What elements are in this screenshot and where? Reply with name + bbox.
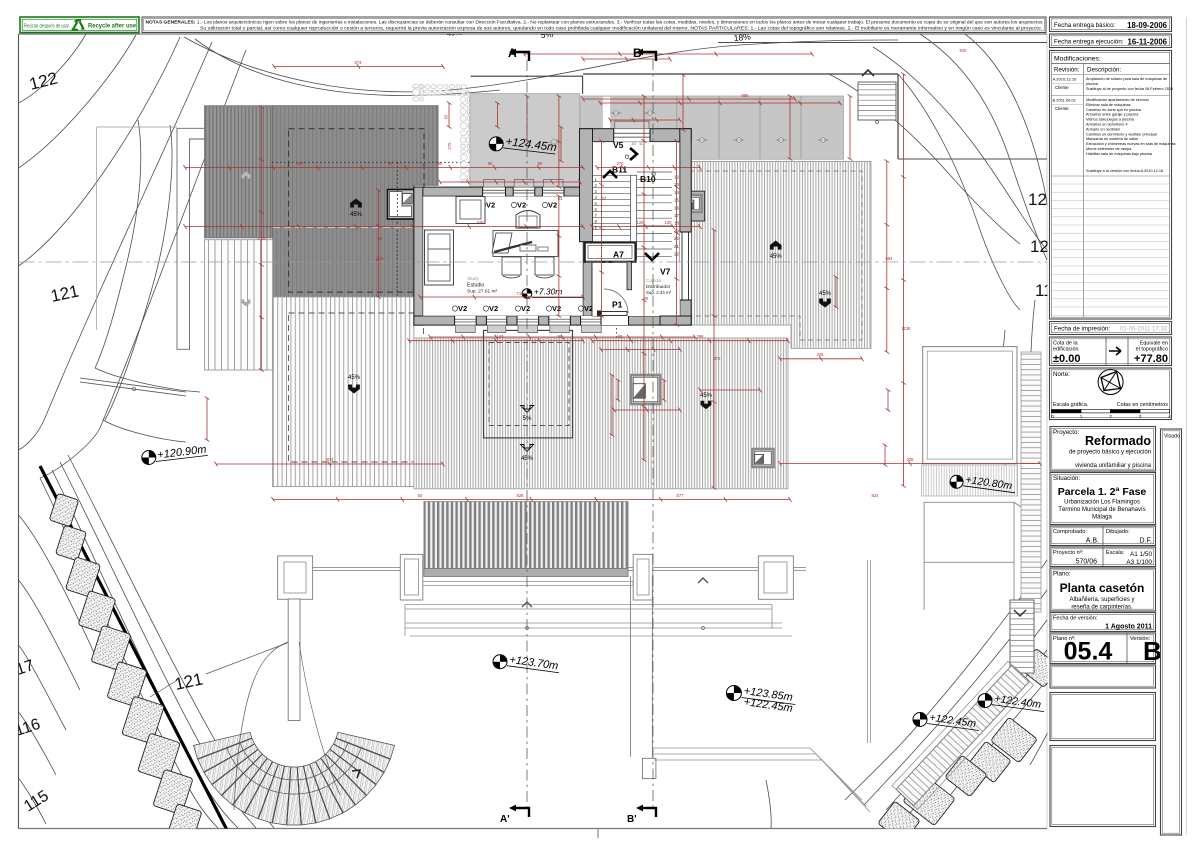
svg-text:Extracción y chimeneas nuevas: Extracción y chimeneas nuevas en sala de… xyxy=(1086,142,1176,146)
svg-text:Mansarda en cubierta de salón: Mansarda en cubierta de salón xyxy=(1086,137,1138,141)
svg-text:51: 51 xyxy=(558,196,563,201)
svg-text:Vidrios sala juegos a piscina: Vidrios sala juegos a piscina xyxy=(1086,118,1135,122)
svg-text:Ampliación de sótano para sala: Ampliación de sótano para sala de máquin… xyxy=(1086,77,1167,81)
svg-text:A7: A7 xyxy=(613,250,624,260)
svg-text:826: 826 xyxy=(517,493,525,498)
svg-text:654: 654 xyxy=(886,256,894,261)
svg-text:50: 50 xyxy=(444,114,449,119)
svg-text:45%: 45% xyxy=(819,291,832,297)
svg-text:±0.00: ±0.00 xyxy=(1053,353,1080,365)
svg-text:37: 37 xyxy=(602,196,607,201)
svg-text:50: 50 xyxy=(418,493,423,498)
svg-text:18-09-2006: 18-09-2006 xyxy=(1127,21,1168,30)
svg-text:Cliente: Cliente xyxy=(1055,106,1069,111)
svg-text:Su utilización total o parcial: Su utilización total o parcial, así como… xyxy=(200,25,1042,30)
svg-text:Comprobado:: Comprobado: xyxy=(1053,529,1087,535)
svg-text:P1: P1 xyxy=(612,300,623,310)
svg-text:120: 120 xyxy=(637,220,645,225)
svg-text:Situación:: Situación: xyxy=(1053,475,1080,482)
svg-text:1330: 1330 xyxy=(257,236,267,241)
svg-text:Visado: Visado xyxy=(1164,434,1180,440)
svg-text:719: 719 xyxy=(517,291,525,296)
svg-text:NOTAS GENERALES: 1.- Los pl: NOTAS GENERALES: 1.- Los planos arquitec… xyxy=(146,20,1044,25)
svg-text:Dibujado:: Dibujado: xyxy=(1106,529,1130,535)
svg-text:el topográfico: el topográfico xyxy=(1136,347,1168,353)
svg-text:45%: 45% xyxy=(348,375,361,381)
svg-text:Fecha de impresión:: Fecha de impresión: xyxy=(1054,326,1110,333)
svg-text:reseña de carpinterías.: reseña de carpinterías. xyxy=(1071,605,1133,611)
svg-text:12: 12 xyxy=(1030,237,1049,256)
svg-text:Study: Study xyxy=(467,276,479,281)
svg-text:Eliminar sala de máquinas: Eliminar sala de máquinas xyxy=(1086,103,1131,107)
svg-text:1138: 1138 xyxy=(901,326,911,331)
svg-text:01-06-2011 17:33: 01-06-2011 17:33 xyxy=(1120,327,1168,333)
svg-text:90: 90 xyxy=(378,236,383,241)
svg-text:45%: 45% xyxy=(770,254,783,260)
svg-text:A1 1/50: A1 1/50 xyxy=(1130,551,1152,558)
svg-text:885: 885 xyxy=(742,93,750,98)
svg-text:Término Municipal de Benahavís: Término Municipal de Benahavís xyxy=(1058,507,1145,513)
svg-text:Cambios en zona spa en piscina: Cambios en zona spa en piscina xyxy=(1086,108,1142,112)
svg-text:Armarios entre garaje y piscin: Armarios entre garaje y piscina xyxy=(1086,113,1139,117)
svg-text:90: 90 xyxy=(438,161,443,166)
svg-text:Planta casetón: Planta casetón xyxy=(1060,581,1145,595)
svg-text:Sustituye a la versión con fec: Sustituye a la versión con fecha A.2010.… xyxy=(1086,169,1163,173)
svg-text:Proyecto:: Proyecto: xyxy=(1053,429,1079,436)
svg-text:874: 874 xyxy=(355,60,363,65)
svg-text:90: 90 xyxy=(558,334,563,339)
svg-text:V7: V7 xyxy=(660,267,671,277)
svg-text:Cambios en dormitorio y vestid: Cambios en dormitorio y vestidor princip… xyxy=(1086,132,1157,136)
svg-text:140: 140 xyxy=(497,334,505,339)
svg-text:Albañilería, superficies y: Albañilería, superficies y xyxy=(1069,597,1134,603)
svg-text:Corridor: Corridor xyxy=(646,278,662,283)
svg-text:140: 140 xyxy=(377,256,385,261)
svg-text:Muros exteriores de rampa: Muros exteriores de rampa xyxy=(1086,147,1132,151)
svg-text:V2: V2 xyxy=(489,304,498,313)
svg-text:275: 275 xyxy=(447,142,452,150)
svg-text:270: 270 xyxy=(617,161,625,166)
svg-text:877: 877 xyxy=(677,493,685,498)
svg-text:V2: V2 xyxy=(517,201,526,210)
svg-text:V2: V2 xyxy=(552,304,561,313)
svg-text:Armarios en dormitorio 4: Armarios en dormitorio 4 xyxy=(1086,123,1128,127)
svg-text:90: 90 xyxy=(618,334,623,339)
svg-text:16-11-2006: 16-11-2006 xyxy=(1128,38,1168,47)
svg-text:Plano:: Plano: xyxy=(1053,571,1071,578)
svg-text:Proyecto nº:: Proyecto nº: xyxy=(1053,549,1084,556)
svg-text:vivienda unifamiliar y piscina: vivienda unifamiliar y piscina xyxy=(1075,463,1152,469)
svg-text:V2: V2 xyxy=(548,201,557,210)
svg-text:V5: V5 xyxy=(613,140,624,150)
svg-text:12: 12 xyxy=(1028,190,1047,209)
svg-text:298: 298 xyxy=(697,334,705,339)
svg-text:D.F.: D.F. xyxy=(1140,538,1153,545)
svg-text:325: 325 xyxy=(817,352,825,357)
svg-text:A: A xyxy=(508,46,517,60)
svg-text:V2: V2 xyxy=(521,304,530,313)
svg-text:90: 90 xyxy=(644,296,649,301)
svg-text:V2: V2 xyxy=(584,304,593,313)
svg-text:Estudio: Estudio xyxy=(467,283,484,289)
svg-text:05.4: 05.4 xyxy=(1064,638,1113,666)
svg-text:Reformado: Reformado xyxy=(1085,434,1151,448)
svg-text:B10: B10 xyxy=(640,174,656,184)
svg-text:Norte:: Norte: xyxy=(1053,371,1070,378)
svg-text:1 Agosto 2011: 1 Agosto 2011 xyxy=(1105,624,1152,631)
svg-text:Modificaciones:: Modificaciones: xyxy=(1054,56,1101,63)
svg-text:B11: B11 xyxy=(612,165,627,175)
svg-text:de proyecto básico y ejecución: de proyecto básico y ejecución xyxy=(1069,450,1151,456)
svg-text:A.B.: A.B. xyxy=(1086,538,1099,545)
svg-text:874: 874 xyxy=(327,457,335,462)
svg-text:Sup. 2.34 m²: Sup. 2.34 m² xyxy=(646,290,672,295)
svg-text:Reciclar después de usar: Reciclar después de usar xyxy=(24,23,69,29)
svg-text:372: 372 xyxy=(714,356,722,361)
svg-text:B.2011.06.01: B.2011.06.01 xyxy=(1053,98,1077,103)
svg-text:Parcela 1. 2ª Fase: Parcela 1. 2ª Fase xyxy=(1058,486,1147,498)
svg-text:Cotas en centímetros: Cotas en centímetros xyxy=(1117,402,1169,408)
svg-text:45%: 45% xyxy=(700,393,713,399)
svg-text:Modificación apartamento de se: Modificación apartamento de servicio xyxy=(1086,98,1149,102)
svg-text:Descripción:: Descripción: xyxy=(1087,67,1121,74)
svg-text:V2: V2 xyxy=(486,201,495,210)
svg-text:Habilitar sala de máquinas baj: Habilitar sala de máquinas bajo piscina xyxy=(1086,152,1153,156)
svg-text:B: B xyxy=(1143,636,1162,666)
svg-text:10: 10 xyxy=(632,142,636,146)
svg-text:B': B' xyxy=(627,814,637,825)
svg-text:piscina: piscina xyxy=(1086,82,1099,86)
svg-text:Cliente: Cliente xyxy=(1055,85,1069,90)
svg-text:Recycle after use: Recycle after use xyxy=(88,23,136,30)
svg-text:Revisión:: Revisión: xyxy=(1054,67,1080,74)
svg-text:Sup. 27.61 m²: Sup. 27.61 m² xyxy=(467,289,498,295)
svg-text:Urbanización Los Flamingos: Urbanización Los Flamingos xyxy=(1064,500,1140,506)
svg-text:824: 824 xyxy=(872,493,880,498)
svg-text:Fecha entrega ejecución:: Fecha entrega ejecución: xyxy=(1054,39,1124,46)
svg-text:Escala gráfica.: Escala gráfica. xyxy=(1053,402,1088,408)
svg-text:90: 90 xyxy=(488,161,493,166)
svg-text:90: 90 xyxy=(538,161,543,166)
svg-text:90: 90 xyxy=(388,161,393,166)
svg-text:+77.80: +77.80 xyxy=(1134,353,1168,365)
svg-text:A3 1/100: A3 1/100 xyxy=(1126,559,1152,566)
svg-text:A.2010.12.16: A.2010.12.16 xyxy=(1053,77,1078,82)
svg-text:346: 346 xyxy=(477,220,485,225)
svg-text:120: 120 xyxy=(665,220,673,225)
svg-text:Armario en recibidor: Armario en recibidor xyxy=(1086,127,1121,131)
svg-text:V2: V2 xyxy=(458,304,467,313)
svg-text:Sustituye al de proyecto con f: Sustituye al de proyecto con fecha 08 Fe… xyxy=(1086,87,1173,91)
svg-text:940: 940 xyxy=(960,48,968,53)
svg-text:Fecha de versión:: Fecha de versión: xyxy=(1053,616,1098,622)
svg-text:45%: 45% xyxy=(350,212,363,218)
svg-text:B: B xyxy=(633,46,642,60)
svg-text:Málaga: Málaga xyxy=(1092,515,1112,521)
svg-text:A': A' xyxy=(500,814,510,825)
svg-text:267: 267 xyxy=(297,161,305,166)
svg-text:Escala:: Escala: xyxy=(1106,550,1125,556)
svg-text:edificación: edificación xyxy=(1053,347,1078,353)
svg-text:11: 11 xyxy=(639,142,643,146)
svg-text:Fecha entrega básico:: Fecha entrega básico: xyxy=(1054,22,1116,29)
svg-text:325: 325 xyxy=(907,457,915,462)
svg-text:+7.30m: +7.30m xyxy=(534,287,563,297)
svg-text:570/06: 570/06 xyxy=(1076,559,1098,566)
